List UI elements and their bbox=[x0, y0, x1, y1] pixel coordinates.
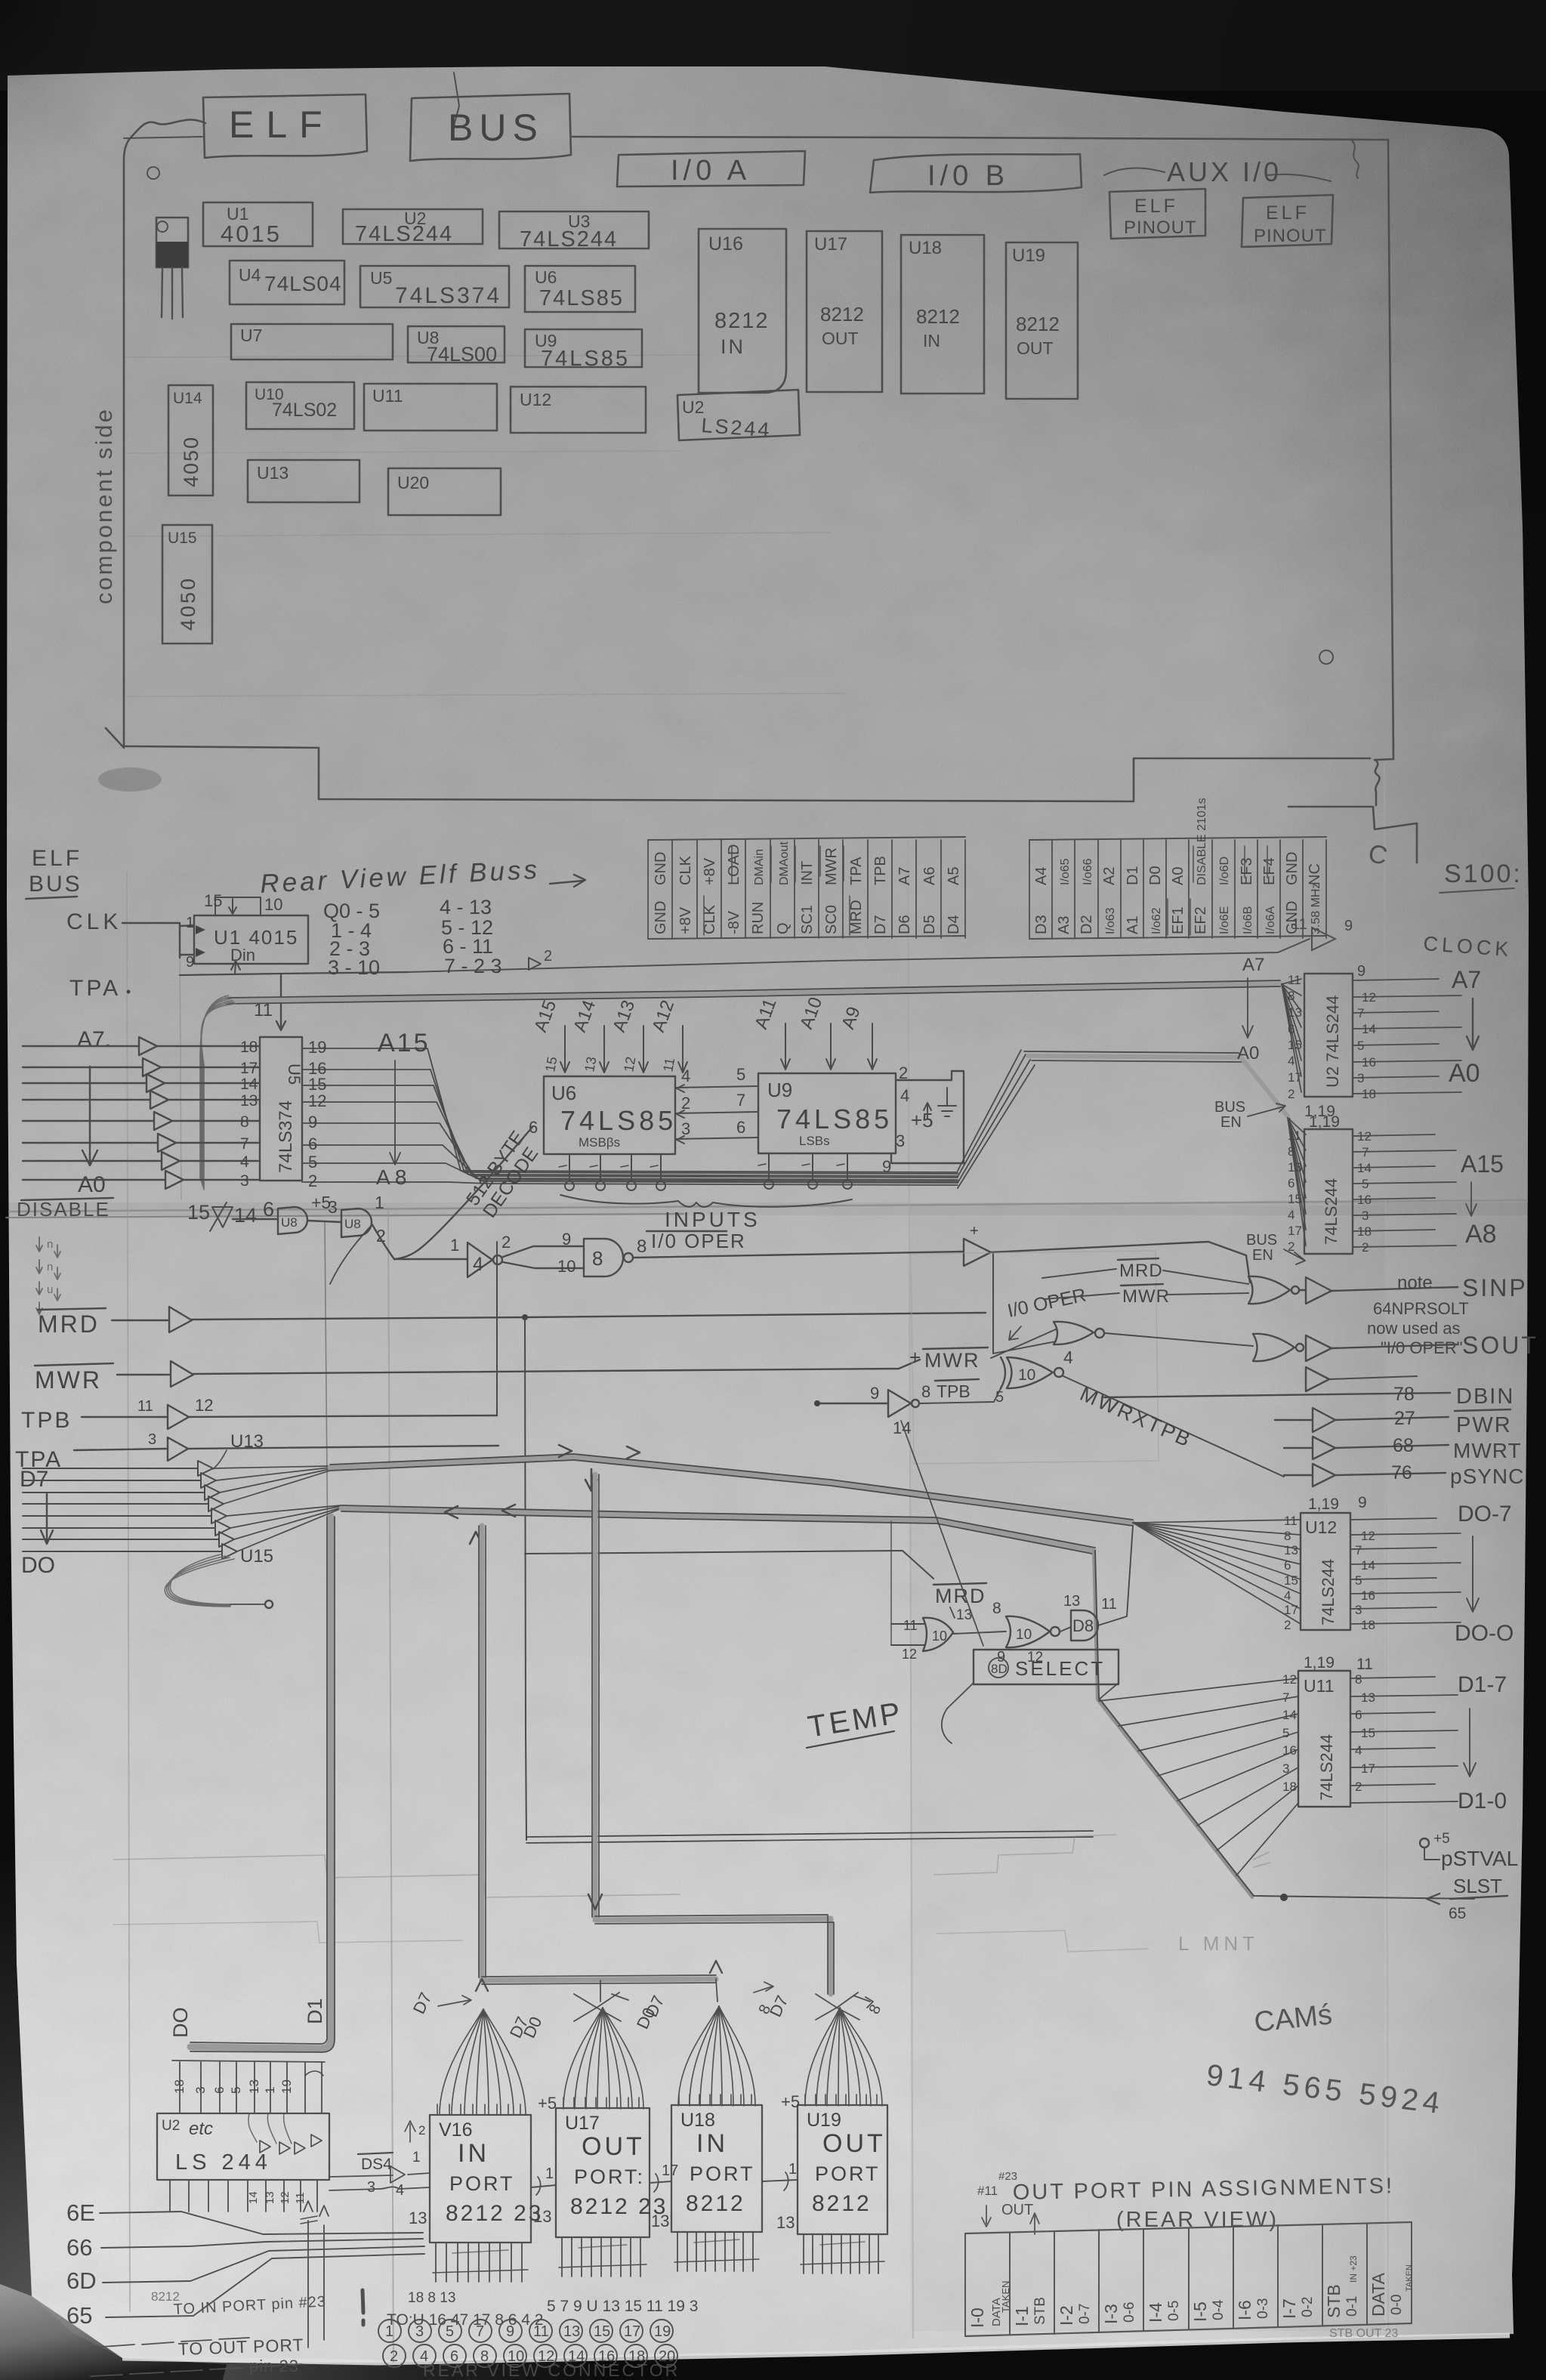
svg-text:D1: D1 bbox=[304, 1998, 326, 2024]
svg-text:4050: 4050 bbox=[180, 436, 202, 487]
svg-text:-8V: -8V bbox=[726, 910, 742, 934]
svg-text:component side: component side bbox=[91, 407, 117, 604]
svg-text:10: 10 bbox=[1016, 1627, 1032, 1643]
svg-text:pSYNC: pSYNC bbox=[1450, 1465, 1524, 1488]
svg-text:11: 11 bbox=[1101, 1596, 1117, 1613]
svg-text:DS4: DS4 bbox=[361, 2156, 392, 2173]
svg-text:64NPRSOLT: 64NPRSOLT bbox=[1373, 1299, 1469, 1318]
svg-text:14: 14 bbox=[1361, 1558, 1375, 1573]
svg-text:1: 1 bbox=[375, 1193, 384, 1212]
svg-text:A0: A0 bbox=[78, 1172, 106, 1197]
svg-text:U11: U11 bbox=[1304, 1676, 1335, 1696]
svg-text:OUT: OUT bbox=[1017, 338, 1054, 358]
svg-text:1: 1 bbox=[412, 2150, 421, 2165]
svg-text:3: 3 bbox=[681, 1119, 690, 1138]
svg-text:RUN: RUN bbox=[750, 902, 767, 934]
svg-text:DMAin: DMAin bbox=[753, 849, 766, 885]
svg-text:0-4: 0-4 bbox=[1211, 2299, 1227, 2320]
svg-text:DBIN: DBIN bbox=[1456, 1384, 1514, 1409]
svg-text:BUS: BUS bbox=[29, 872, 82, 897]
svg-text:74LS244: 74LS244 bbox=[1317, 1734, 1336, 1801]
svg-text:65: 65 bbox=[1449, 1905, 1466, 1922]
svg-text:TPB: TPB bbox=[21, 1408, 72, 1433]
svg-text:1: 1 bbox=[450, 1236, 459, 1255]
svg-text:IN: IN bbox=[696, 2129, 728, 2158]
svg-text:A7: A7 bbox=[896, 867, 913, 885]
svg-text:4: 4 bbox=[1288, 1054, 1295, 1068]
svg-text:8: 8 bbox=[1284, 1529, 1291, 1543]
svg-text:A5: A5 bbox=[946, 867, 962, 885]
svg-text:GND: GND bbox=[1284, 852, 1301, 885]
svg-text:LOAD: LOAD bbox=[726, 844, 742, 885]
svg-text:LS 244: LS 244 bbox=[175, 2150, 272, 2175]
svg-text:13: 13 bbox=[1288, 1160, 1302, 1175]
svg-text:5: 5 bbox=[1362, 1177, 1369, 1191]
svg-text:U12: U12 bbox=[1305, 1517, 1337, 1537]
svg-text:I/o6B: I/o6B bbox=[1242, 906, 1254, 934]
svg-text:5: 5 bbox=[308, 1153, 317, 1171]
svg-text:STB: STB bbox=[1324, 2284, 1344, 2318]
svg-text:6D: 6D bbox=[66, 2267, 97, 2294]
svg-text:4: 4 bbox=[681, 1067, 690, 1085]
svg-text:U5: U5 bbox=[285, 1063, 304, 1085]
svg-text:16: 16 bbox=[1282, 1743, 1297, 1758]
svg-text:+5: +5 bbox=[1433, 1831, 1450, 1847]
svg-text:MSBβs: MSBβs bbox=[579, 1135, 620, 1150]
svg-text:74LS85: 74LS85 bbox=[560, 1105, 677, 1136]
svg-text:L MNT: L MNT bbox=[1178, 1932, 1259, 1955]
svg-text:I/o65: I/o65 bbox=[1059, 858, 1072, 885]
svg-text:6: 6 bbox=[1284, 1558, 1291, 1573]
svg-text:A 8: A 8 bbox=[376, 1165, 406, 1189]
svg-text:U4: U4 bbox=[239, 265, 261, 285]
svg-text:A1: A1 bbox=[1125, 916, 1141, 934]
svg-text:13: 13 bbox=[956, 1607, 972, 1623]
svg-text:A7.: A7. bbox=[77, 1027, 111, 1052]
svg-text:74LS85: 74LS85 bbox=[539, 286, 624, 310]
svg-text:0-3: 0-3 bbox=[1255, 2298, 1271, 2319]
svg-text:14: 14 bbox=[1357, 1161, 1372, 1175]
svg-text:6: 6 bbox=[1355, 1708, 1362, 1722]
svg-text:+8V: +8V bbox=[702, 857, 718, 885]
svg-text:D7: D7 bbox=[872, 915, 889, 934]
svg-text:1: 1 bbox=[385, 2323, 393, 2340]
svg-text:9: 9 bbox=[506, 2323, 514, 2340]
svg-text:GND: GND bbox=[653, 852, 669, 885]
svg-text:10: 10 bbox=[557, 1257, 576, 1276]
svg-text:A6: A6 bbox=[921, 867, 938, 885]
svg-text:4: 4 bbox=[240, 1153, 249, 1171]
svg-text:A15: A15 bbox=[1461, 1150, 1504, 1178]
svg-text:ELF: ELF bbox=[229, 103, 335, 146]
svg-text:SELECT: SELECT bbox=[1015, 1657, 1105, 1680]
svg-text:I-7: I-7 bbox=[1279, 2298, 1299, 2319]
svg-text:TPB: TPB bbox=[937, 1381, 970, 1401]
svg-text:U6: U6 bbox=[551, 1082, 576, 1104]
svg-text:6: 6 bbox=[308, 1134, 317, 1153]
svg-text:12: 12 bbox=[902, 1647, 917, 1662]
svg-text:9: 9 bbox=[1357, 963, 1365, 980]
svg-text:8: 8 bbox=[240, 1113, 249, 1131]
svg-text:I/o62: I/o62 bbox=[1150, 907, 1163, 934]
svg-text:15: 15 bbox=[1284, 1573, 1298, 1588]
svg-text:I-5: I-5 bbox=[1190, 2301, 1210, 2322]
svg-text:I-2: I-2 bbox=[1057, 2305, 1076, 2326]
svg-text:4015: 4015 bbox=[221, 221, 282, 247]
svg-text:D0: D0 bbox=[1147, 866, 1164, 885]
svg-text:U2: U2 bbox=[682, 397, 704, 417]
svg-text:9: 9 bbox=[308, 1113, 317, 1131]
svg-text:U15: U15 bbox=[168, 529, 197, 547]
svg-text:8212: 8212 bbox=[916, 305, 960, 328]
svg-text:pSTVAL: pSTVAL bbox=[1441, 1847, 1518, 1870]
svg-text:A0: A0 bbox=[1237, 1043, 1259, 1063]
svg-text:I/o63: I/o63 bbox=[1104, 907, 1117, 934]
svg-text:2: 2 bbox=[1288, 1087, 1295, 1101]
svg-text:A8: A8 bbox=[1465, 1220, 1497, 1249]
svg-text:+: + bbox=[909, 1346, 921, 1369]
svg-text:etc: etc bbox=[189, 2119, 213, 2139]
svg-text:6E: 6E bbox=[66, 2199, 95, 2226]
svg-text:TPA: TPA bbox=[848, 857, 865, 885]
svg-text:BUS: BUS bbox=[448, 106, 544, 149]
svg-text:U2 74LS244: U2 74LS244 bbox=[1323, 996, 1342, 1088]
svg-text:U1 4015: U1 4015 bbox=[214, 926, 298, 949]
svg-text:NC: NC bbox=[1307, 863, 1323, 885]
svg-text:76: 76 bbox=[1391, 1462, 1412, 1483]
svg-text:13: 13 bbox=[264, 2191, 276, 2204]
svg-text:GND: GND bbox=[653, 901, 669, 934]
svg-text:LSBs: LSBs bbox=[799, 1134, 830, 1148]
svg-text:U18: U18 bbox=[680, 2110, 715, 2131]
svg-text:DISABLE 2101s: DISABLE 2101s bbox=[1196, 798, 1208, 885]
svg-text:4: 4 bbox=[1288, 1208, 1295, 1222]
svg-text:4: 4 bbox=[1284, 1588, 1291, 1603]
svg-text:12: 12 bbox=[308, 1091, 326, 1110]
svg-text:17: 17 bbox=[1361, 1761, 1375, 1776]
svg-text:0-2: 0-2 bbox=[1300, 2297, 1316, 2317]
svg-text:I/0 A: I/0 A bbox=[671, 155, 751, 187]
svg-text:U19: U19 bbox=[1012, 245, 1045, 266]
svg-text:Din: Din bbox=[230, 946, 255, 965]
svg-text:8212: 8212 bbox=[714, 309, 770, 333]
svg-text:DO-7: DO-7 bbox=[1458, 1502, 1512, 1526]
svg-text:I-1: I-1 bbox=[1012, 2306, 1032, 2326]
svg-text:3: 3 bbox=[415, 2323, 424, 2340]
svg-text:OUT: OUT bbox=[1001, 2202, 1033, 2218]
svg-text:REAR VIEW CONNECTOR: REAR VIEW CONNECTOR bbox=[423, 2360, 680, 2380]
svg-text:14: 14 bbox=[234, 1204, 257, 1227]
svg-text:10: 10 bbox=[264, 895, 282, 914]
svg-text:PORT: PORT bbox=[815, 2162, 881, 2185]
svg-text:SOUT: SOUT bbox=[1462, 1332, 1538, 1359]
svg-text:+8V: +8V bbox=[677, 906, 694, 934]
svg-text:13: 13 bbox=[1284, 1543, 1298, 1557]
svg-text:4050: 4050 bbox=[177, 576, 199, 631]
svg-text:SC0: SC0 bbox=[823, 905, 840, 934]
svg-text:15: 15 bbox=[594, 2323, 610, 2340]
svg-text:11: 11 bbox=[1284, 1514, 1298, 1528]
svg-text:D5: D5 bbox=[921, 915, 938, 934]
svg-text:12: 12 bbox=[1361, 1529, 1375, 1543]
svg-text:65: 65 bbox=[66, 2302, 92, 2329]
svg-text:0-5: 0-5 bbox=[1166, 2301, 1182, 2321]
svg-text:13: 13 bbox=[563, 2323, 580, 2340]
svg-text:17: 17 bbox=[1288, 1070, 1302, 1085]
svg-text:13: 13 bbox=[651, 2212, 669, 2230]
svg-text:2: 2 bbox=[544, 948, 552, 965]
svg-text:74LS244: 74LS244 bbox=[1322, 1178, 1341, 1245]
svg-text:19: 19 bbox=[279, 2079, 294, 2094]
svg-text:7: 7 bbox=[1282, 1690, 1289, 1705]
svg-text:8212: 8212 bbox=[686, 2191, 745, 2216]
svg-text:13: 13 bbox=[1361, 1690, 1375, 1705]
svg-text:13: 13 bbox=[1063, 1593, 1080, 1610]
svg-text:DO: DO bbox=[169, 2008, 192, 2039]
svg-text:68: 68 bbox=[1393, 1435, 1414, 1456]
svg-text:EF3: EF3 bbox=[1239, 857, 1255, 885]
svg-text:15: 15 bbox=[1288, 1038, 1302, 1052]
svg-text:16: 16 bbox=[1362, 1055, 1376, 1070]
svg-text:8D: 8D bbox=[991, 1662, 1008, 1676]
svg-text:3: 3 bbox=[148, 1431, 156, 1448]
svg-text:EN: EN bbox=[1252, 1247, 1273, 1264]
svg-text:2: 2 bbox=[308, 1171, 317, 1190]
svg-text:18: 18 bbox=[172, 2079, 187, 2094]
svg-text:1,19: 1,19 bbox=[1309, 1113, 1340, 1131]
svg-text:19: 19 bbox=[654, 2323, 671, 2340]
svg-text:5: 5 bbox=[229, 2087, 243, 2094]
svg-text:PORT: PORT bbox=[449, 2172, 515, 2195]
svg-text:+: + bbox=[970, 1223, 979, 1239]
svg-text:note: note bbox=[1397, 1273, 1433, 1293]
svg-text:14: 14 bbox=[1282, 1708, 1297, 1722]
svg-text:PWR: PWR bbox=[1456, 1413, 1512, 1437]
svg-text:3 - 10: 3 - 10 bbox=[328, 956, 380, 979]
svg-text:A0: A0 bbox=[1449, 1059, 1480, 1088]
svg-text:A15: A15 bbox=[378, 1029, 430, 1057]
svg-text:CLK: CLK bbox=[677, 855, 694, 885]
svg-text:12: 12 bbox=[1282, 1672, 1297, 1687]
svg-text:16: 16 bbox=[1361, 1588, 1375, 1603]
svg-text:17: 17 bbox=[624, 2323, 640, 2340]
svg-text:ELF: ELF bbox=[1266, 202, 1310, 224]
svg-text:DATA: DATA bbox=[1369, 2272, 1388, 2317]
svg-text:PINOUT: PINOUT bbox=[1124, 218, 1197, 238]
svg-text:1: 1 bbox=[186, 915, 194, 931]
svg-text:13: 13 bbox=[409, 2209, 427, 2227]
svg-text:2: 2 bbox=[376, 1226, 386, 1246]
svg-text:0-7: 0-7 bbox=[1077, 2304, 1093, 2324]
svg-text:I/o6A: I/o6A bbox=[1264, 906, 1277, 934]
svg-text:74LS85: 74LS85 bbox=[776, 1104, 893, 1134]
svg-text:I/o6D: I/o6D bbox=[1218, 857, 1231, 885]
svg-text:18: 18 bbox=[240, 1039, 258, 1056]
svg-text:AUX I/0: AUX I/0 bbox=[1167, 156, 1282, 187]
svg-text:9: 9 bbox=[186, 954, 194, 971]
svg-text:MWR: MWR bbox=[35, 1366, 102, 1394]
svg-text:OUT: OUT bbox=[822, 329, 859, 348]
svg-text:STB: STB bbox=[1032, 2297, 1048, 2325]
svg-text:U17: U17 bbox=[814, 234, 847, 255]
svg-text:17: 17 bbox=[662, 2162, 678, 2179]
svg-text:74LS02: 74LS02 bbox=[272, 400, 337, 421]
svg-text:D6: D6 bbox=[896, 915, 913, 934]
svg-text:PORT: PORT bbox=[690, 2162, 755, 2185]
svg-text:I-6: I-6 bbox=[1235, 2300, 1254, 2320]
svg-text:BUS: BUS bbox=[1246, 1232, 1277, 1249]
svg-text:11: 11 bbox=[533, 2323, 549, 2340]
svg-text:8: 8 bbox=[1288, 1144, 1295, 1159]
svg-text:MRD: MRD bbox=[935, 1585, 986, 1607]
svg-text:16: 16 bbox=[1357, 1193, 1372, 1207]
svg-text:ELF: ELF bbox=[32, 846, 82, 871]
svg-text:D1-0: D1-0 bbox=[1458, 1789, 1507, 1814]
svg-text:MRD: MRD bbox=[1119, 1261, 1163, 1281]
svg-text:15: 15 bbox=[542, 1055, 560, 1073]
svg-text:D3: D3 bbox=[1033, 915, 1050, 934]
svg-text:8: 8 bbox=[1355, 1672, 1362, 1687]
svg-text:I/o6E: I/o6E bbox=[1218, 906, 1231, 934]
svg-text:Q: Q bbox=[775, 922, 792, 934]
svg-text:U9: U9 bbox=[767, 1079, 792, 1101]
svg-text:D4: D4 bbox=[946, 915, 962, 934]
svg-text:7: 7 bbox=[736, 1091, 745, 1110]
svg-text:11: 11 bbox=[1288, 1128, 1301, 1143]
svg-text:6: 6 bbox=[736, 1118, 745, 1137]
svg-text:8212 23: 8212 23 bbox=[446, 2201, 543, 2226]
svg-text:U19: U19 bbox=[807, 2110, 841, 2131]
svg-text:D7: D7 bbox=[20, 1467, 48, 1492]
svg-text:74LS00: 74LS00 bbox=[427, 343, 497, 366]
svg-text:DO: DO bbox=[21, 1553, 55, 1578]
svg-text:MWRT: MWRT bbox=[1453, 1439, 1522, 1462]
svg-text:2: 2 bbox=[390, 2348, 398, 2365]
svg-text:U13: U13 bbox=[230, 1431, 264, 1452]
svg-text:2: 2 bbox=[681, 1094, 690, 1113]
svg-text:MWR: MWR bbox=[1122, 1286, 1170, 1307]
svg-text:15: 15 bbox=[1288, 1192, 1302, 1206]
svg-text:5 7 9 U 13 15 11 19 3: 5 7 9 U 13 15 11 19 3 bbox=[547, 2298, 698, 2315]
svg-text:7: 7 bbox=[1357, 1006, 1364, 1020]
svg-text:A7: A7 bbox=[1242, 955, 1264, 975]
svg-text:14: 14 bbox=[893, 1418, 911, 1437]
svg-text:18: 18 bbox=[1361, 1618, 1375, 1632]
svg-text:U2: U2 bbox=[162, 2118, 180, 2134]
svg-text:U7: U7 bbox=[240, 326, 262, 345]
svg-text:MWR: MWR bbox=[924, 1349, 980, 1372]
svg-text:V16: V16 bbox=[439, 2119, 472, 2141]
svg-text:5: 5 bbox=[1355, 1573, 1362, 1588]
svg-text:TAKEN: TAKEN bbox=[1405, 2264, 1414, 2292]
svg-text:pin 23: pin 23 bbox=[249, 2357, 299, 2375]
svg-text:5: 5 bbox=[1357, 1039, 1364, 1053]
svg-text:10: 10 bbox=[932, 1628, 947, 1644]
svg-text:19: 19 bbox=[308, 1038, 326, 1057]
svg-text:8: 8 bbox=[592, 1247, 603, 1270]
svg-text:14: 14 bbox=[1362, 1022, 1376, 1036]
svg-text:11: 11 bbox=[1356, 1656, 1373, 1673]
svg-text:3: 3 bbox=[1355, 1603, 1362, 1617]
svg-text:U13: U13 bbox=[257, 463, 289, 483]
svg-text:+5: +5 bbox=[781, 2092, 800, 2111]
svg-text:OUT: OUT bbox=[582, 2132, 645, 2161]
svg-text:OUT: OUT bbox=[822, 2129, 886, 2158]
svg-text:U12: U12 bbox=[520, 390, 551, 409]
svg-text:6: 6 bbox=[212, 2087, 227, 2094]
svg-text:13: 13 bbox=[247, 2079, 261, 2094]
svg-text:S100:: S100: bbox=[1444, 860, 1523, 888]
svg-text:A0: A0 bbox=[1170, 867, 1187, 885]
svg-text:2: 2 bbox=[418, 2123, 425, 2138]
svg-text:SINP: SINP bbox=[1462, 1274, 1528, 1301]
svg-text:2: 2 bbox=[899, 1063, 908, 1082]
svg-text:I-3: I-3 bbox=[1101, 2304, 1121, 2324]
svg-text:13: 13 bbox=[1288, 1005, 1302, 1020]
svg-text:6: 6 bbox=[1288, 1176, 1295, 1190]
svg-text:A2: A2 bbox=[1101, 867, 1118, 885]
svg-text:IN: IN bbox=[458, 2139, 489, 2168]
svg-text:78: 78 bbox=[1393, 1384, 1415, 1405]
svg-text:U11: U11 bbox=[372, 386, 403, 406]
svg-text:IN +23: IN +23 bbox=[1348, 2255, 1359, 2283]
svg-text:CLK: CLK bbox=[66, 909, 122, 934]
svg-text:74LS374: 74LS374 bbox=[395, 283, 501, 308]
svg-text:15: 15 bbox=[1361, 1726, 1375, 1740]
svg-text:I/0 B: I/0 B bbox=[927, 160, 1009, 192]
svg-text:MRD: MRD bbox=[38, 1310, 100, 1338]
svg-text:11: 11 bbox=[137, 1398, 153, 1415]
svg-text:3: 3 bbox=[896, 1131, 905, 1150]
svg-text:D8: D8 bbox=[1072, 1616, 1094, 1635]
svg-text:U8: U8 bbox=[281, 1215, 298, 1230]
svg-text:18: 18 bbox=[1357, 1224, 1372, 1239]
svg-text:DO-O: DO-O bbox=[1455, 1621, 1514, 1646]
svg-text:U17: U17 bbox=[565, 2113, 600, 2134]
svg-text:12: 12 bbox=[1362, 990, 1376, 1005]
svg-text:10: 10 bbox=[1018, 1366, 1035, 1384]
svg-text:4: 4 bbox=[396, 2182, 404, 2199]
svg-text:DISABLE: DISABLE bbox=[17, 1198, 110, 1221]
svg-text:11: 11 bbox=[1288, 973, 1301, 987]
svg-text:74LS244: 74LS244 bbox=[520, 227, 618, 252]
svg-text:0-6: 0-6 bbox=[1122, 2302, 1137, 2323]
svg-text:DMAout: DMAout bbox=[778, 841, 791, 885]
svg-text:n: n bbox=[47, 1238, 53, 1251]
svg-text:TPA: TPA bbox=[69, 976, 121, 1001]
svg-text:66: 66 bbox=[66, 2234, 92, 2261]
svg-text:#23: #23 bbox=[998, 2170, 1017, 2183]
svg-text:A7: A7 bbox=[1452, 966, 1481, 993]
svg-text:8: 8 bbox=[992, 1600, 1001, 1617]
svg-text:"I/0 OPER": "I/0 OPER" bbox=[1381, 1338, 1463, 1357]
svg-text:U15: U15 bbox=[240, 1546, 273, 1567]
svg-text:ELF: ELF bbox=[1134, 196, 1178, 217]
svg-text:17: 17 bbox=[1288, 1224, 1302, 1238]
svg-text:now used as: now used as bbox=[1367, 1319, 1461, 1338]
svg-text:11: 11 bbox=[660, 1057, 677, 1073]
svg-text:5: 5 bbox=[446, 2323, 454, 2340]
svg-text:4 - 13: 4 - 13 bbox=[440, 896, 492, 918]
svg-text:5: 5 bbox=[1282, 1726, 1289, 1740]
svg-text:I-4: I-4 bbox=[1146, 2302, 1165, 2323]
svg-text:6: 6 bbox=[1288, 1022, 1295, 1036]
svg-text:SC1: SC1 bbox=[799, 905, 816, 934]
svg-text:17: 17 bbox=[1284, 1603, 1298, 1617]
svg-text:4: 4 bbox=[1355, 1743, 1362, 1758]
svg-text:I/o66: I/o66 bbox=[1082, 858, 1094, 885]
svg-text:IN: IN bbox=[721, 335, 745, 358]
